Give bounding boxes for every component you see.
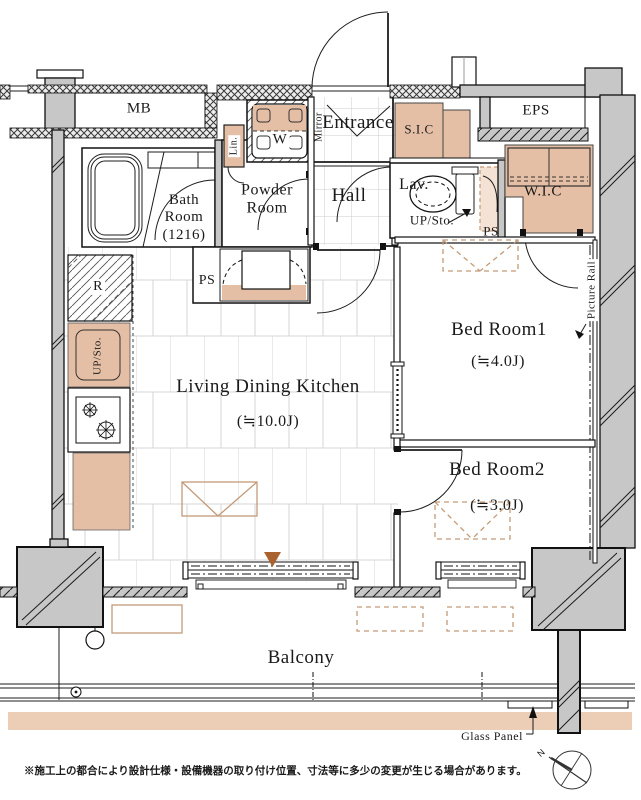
room-label-entrance: Entrance [322,112,394,134]
room-label-powder-room: Powder Room [228,182,306,219]
label-linen: Lin. [228,135,240,157]
label-picture-rail: Picture Rail [586,259,599,321]
label-ps-kitchen: PS [197,273,218,289]
size-label-bedroom2: (≒3.0J) [470,497,524,515]
room-label-bedroom1: Bed Room1 [451,319,547,341]
label-fridge: R [91,279,105,295]
size-label-ldk: (≒10.0J) [237,413,299,431]
room-label-lav: Lav. [399,176,429,194]
label-glass-panel: Glass Panel [461,730,523,744]
room-label-bathroom: Bath Room (1216) [155,192,213,244]
room-label-mb: MB [127,100,151,117]
label-up-sto-kitchen: UP/Sto. [92,337,105,375]
room-label-wic: W.I.C [524,183,562,200]
label-up-sto: UP/Sto. [410,214,454,229]
label-washer: W [271,131,290,148]
room-label-ldk: Living Dining Kitchen [176,376,360,398]
balcony-fixtures [0,605,635,789]
bedrooms [391,237,597,587]
room-label-bedroom2: Bed Room2 [449,459,545,481]
label-mirror: Mirror [313,112,325,142]
size-label-bedroom1: (≒4.0J) [471,353,525,371]
label-ps-upper: PS [483,225,498,240]
floor-plan: MB EPS Entrance Mirror S.I.C Lin. W Bath… [0,0,641,800]
room-label-hall: Hall [332,185,367,207]
room-label-sic: S.I.C [404,123,433,138]
construction-footnote: ※施工上の都合により設計仕様・設備機器の取り付け位置、寸法等に多少の変更が生じる… [24,763,564,778]
room-label-eps: EPS [522,102,549,119]
room-label-balcony: Balcony [268,647,335,669]
